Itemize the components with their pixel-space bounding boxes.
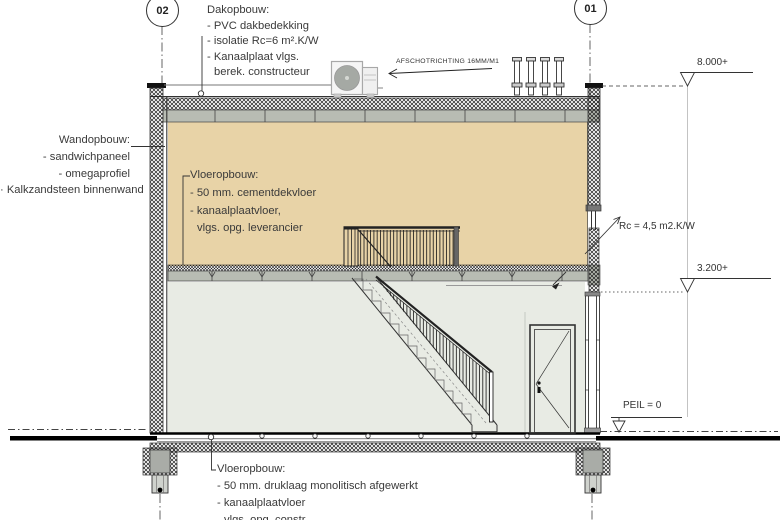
ground-floor-slab [150,434,600,453]
annotation-line: - 50 mm. cementdekvloer [190,185,316,203]
annotation-title: Dakopbouw: [207,3,319,19]
right-wall-upper [585,83,603,292]
annotation-line: - kanaalplaatvloer, [190,203,316,221]
roof-vents [512,58,564,96]
annotation-line: - kanaalplaatvloer [217,495,418,512]
annotation-line: - Kanaalplaat vlgs. [207,50,319,66]
annotation-title: Vloeropbouw: [217,461,418,478]
annotation-line: vlgs. opg. leverancier [190,220,316,238]
section-linework [0,0,780,520]
level-label-floor: 3.200+ [697,263,728,274]
foundation-left [143,448,177,493]
annotation-line: - PVC dakbedekking [207,19,319,35]
grid-label-02: 02 [156,5,168,17]
annotation-line: - isolatie Rc=6 m².K/W [207,34,319,50]
annotation-vloer-verdieping: Vloeropbouw: - 50 mm. cementdekvloer - k… [190,167,316,238]
annotation-line: - omegaprofiel [0,166,130,183]
annotation-line: berek. constructeur [207,65,319,81]
landing-railing [344,227,461,267]
level-markers [601,73,771,433]
annotation-line: - 50 mm. druklaag monolitisch afgewerkt [217,478,418,495]
annotation-wandopbouw: Wandopbouw: - sandwichpaneel - omegaprof… [0,132,130,199]
slope-direction-label: AFSCHOTRICHTING 16MM/M1 [396,58,499,65]
level-label-roof: 8.000+ [697,57,728,68]
annotation-line: vlgs. opg. constr. [217,512,418,520]
annotation-line: · Kalkzandsteen binnenwand [0,182,130,199]
foundation-right [576,448,610,493]
roof-slab [150,97,600,123]
slope-direction-arrow [389,69,492,79]
left-wall [147,83,167,433]
annotation-dakopbouw: Dakopbouw: - PVC dakbedekking - isolatie… [207,3,319,81]
annotation-line: - sandwichpaneel [0,149,130,166]
section-drawing-canvas: 02 01 Dakopbouw: - PVC dakbedekking - is… [0,0,780,520]
annotation-title: Vloeropbouw: [190,167,316,185]
right-wall-lower-frame [585,292,601,433]
annotation-vloer-begane-grond: Vloeropbouw: - 50 mm. druklaag monolitis… [217,461,418,520]
annotation-title: Wandopbouw: [0,132,130,149]
level-label-ground: PEIL = 0 [623,400,661,411]
rc-wall-label: Rc = 4,5 m2.K/W [619,221,695,232]
grid-label-01: 01 [584,3,596,15]
